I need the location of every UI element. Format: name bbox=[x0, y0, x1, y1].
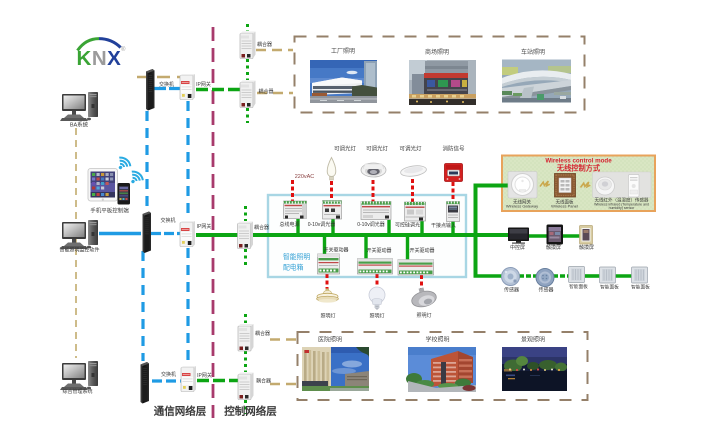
svg-text:humidity) sensor: humidity) sensor bbox=[609, 206, 636, 210]
svg-text:可控硅调光: 可控硅调光 bbox=[395, 222, 420, 229]
svg-text:IP网关: IP网关 bbox=[197, 223, 212, 230]
svg-text:总线电源: 总线电源 bbox=[279, 221, 299, 228]
svg-text:Wireless Panel: Wireless Panel bbox=[551, 204, 578, 209]
svg-text:耦合器: 耦合器 bbox=[256, 378, 271, 385]
svg-text:交换机: 交换机 bbox=[161, 371, 176, 378]
svg-text:景观照明: 景观照明 bbox=[521, 337, 545, 344]
svg-text:手机平板控制端: 手机平板控制端 bbox=[90, 207, 129, 215]
svg-text:传感器: 传感器 bbox=[538, 287, 553, 294]
svg-text:通信网络层: 通信网络层 bbox=[154, 405, 207, 418]
svg-text:IP网关: IP网关 bbox=[196, 81, 211, 88]
svg-text:触摸屏: 触摸屏 bbox=[546, 244, 561, 251]
svg-text:照明灯: 照明灯 bbox=[320, 313, 335, 320]
svg-text:触摸屏: 触摸屏 bbox=[579, 244, 594, 251]
svg-text:学校照明: 学校照明 bbox=[425, 336, 449, 344]
svg-text:可调光灯: 可调光灯 bbox=[399, 145, 422, 153]
svg-text:交换机: 交换机 bbox=[160, 217, 175, 224]
svg-text:综合管理系统: 综合管理系统 bbox=[62, 388, 92, 395]
svg-text:干接点输入: 干接点输入 bbox=[431, 222, 456, 229]
svg-text:照明灯: 照明灯 bbox=[416, 312, 431, 319]
svg-text:传感器: 传感器 bbox=[504, 287, 519, 294]
svg-text:可调光灯: 可调光灯 bbox=[366, 145, 389, 153]
svg-text:工厂照明: 工厂照明 bbox=[331, 48, 355, 55]
svg-text:智能照明: 智能照明 bbox=[283, 252, 310, 261]
svg-text:智能照明监控软件: 智能照明监控软件 bbox=[59, 247, 99, 254]
svg-text:医院照明: 医院照明 bbox=[318, 336, 342, 344]
svg-text:0-10v调光器: 0-10v调光器 bbox=[357, 221, 385, 228]
svg-text:Wireless Gateway: Wireless Gateway bbox=[506, 204, 538, 209]
svg-text:可调光灯: 可调光灯 bbox=[334, 145, 357, 153]
svg-text:0-10v调光器: 0-10v调光器 bbox=[308, 221, 336, 228]
svg-text:开关驱动器: 开关驱动器 bbox=[409, 247, 434, 254]
svg-text:耦合器: 耦合器 bbox=[258, 88, 273, 95]
svg-text:耦合器: 耦合器 bbox=[255, 330, 270, 337]
svg-text:KNX: KNX bbox=[77, 47, 122, 70]
svg-text:无线控制方式: 无线控制方式 bbox=[556, 164, 601, 173]
svg-text:智能面板: 智能面板 bbox=[600, 284, 619, 291]
svg-text:智能面板: 智能面板 bbox=[569, 283, 588, 290]
svg-text:开关驱动器: 开关驱动器 bbox=[323, 247, 348, 254]
svg-text:消防信号: 消防信号 bbox=[442, 145, 465, 153]
svg-text:智能面板: 智能面板 bbox=[631, 284, 650, 291]
svg-text:耦合器: 耦合器 bbox=[254, 224, 269, 231]
svg-text:IP网关: IP网关 bbox=[197, 372, 212, 379]
svg-text:耦合器: 耦合器 bbox=[257, 41, 272, 48]
svg-text:照明灯: 照明灯 bbox=[369, 313, 384, 320]
svg-text:220vAC: 220vAC bbox=[295, 174, 315, 180]
svg-text:商场照明: 商场照明 bbox=[425, 48, 449, 56]
svg-text:控制网络层: 控制网络层 bbox=[224, 405, 277, 418]
svg-text:BA系统: BA系统 bbox=[70, 121, 89, 129]
svg-text:®: ® bbox=[121, 46, 126, 53]
svg-text:开关驱动器: 开关驱动器 bbox=[366, 247, 391, 254]
svg-text:中控屏: 中控屏 bbox=[510, 244, 525, 251]
svg-text:车站照明: 车站照明 bbox=[521, 48, 545, 56]
svg-text:交换机: 交换机 bbox=[159, 81, 174, 88]
svg-text:配电箱: 配电箱 bbox=[283, 263, 304, 272]
